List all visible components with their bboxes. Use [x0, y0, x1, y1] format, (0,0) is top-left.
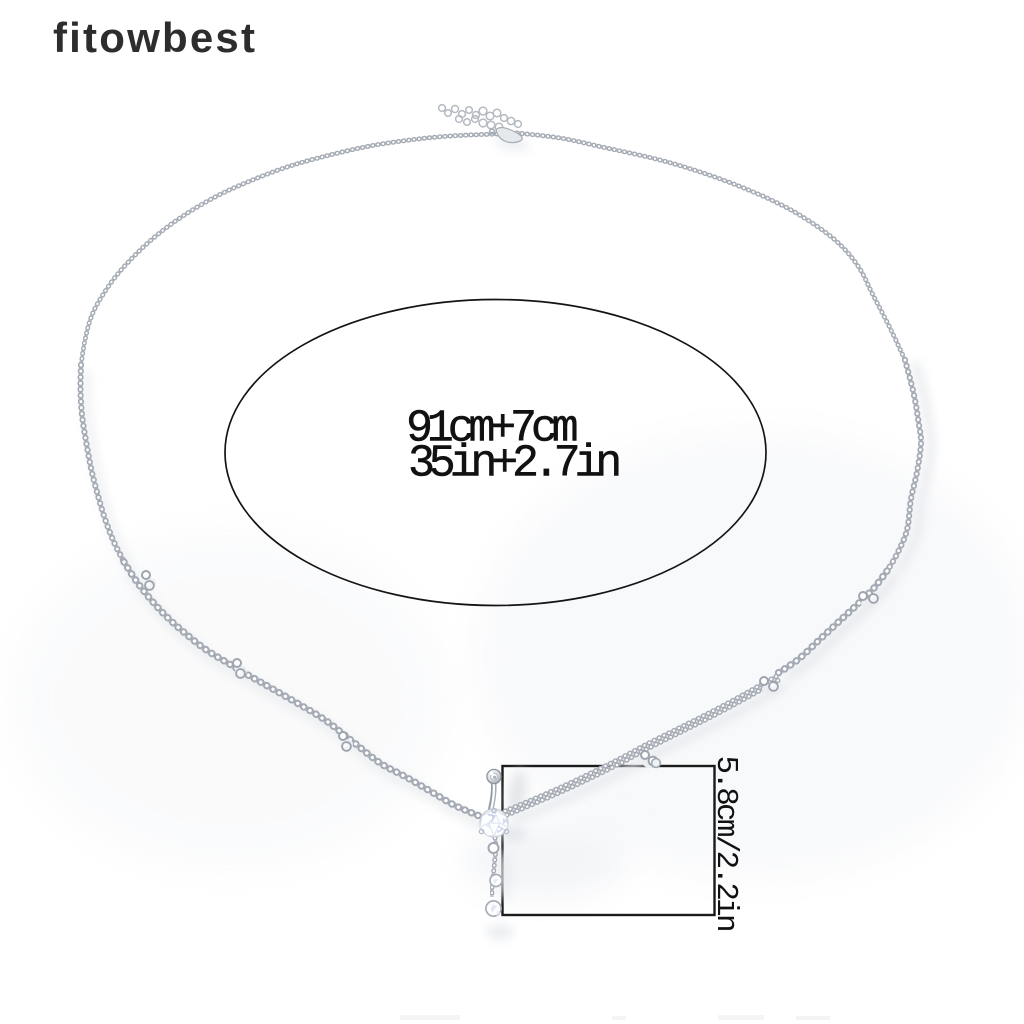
svg-text:35in+2.7in: 35in+2.7in — [408, 439, 619, 490]
svg-text:5.8cm/2.2in: 5.8cm/2.2in — [708, 756, 743, 931]
svg-text:fitowbest: fitowbest — [53, 14, 257, 61]
